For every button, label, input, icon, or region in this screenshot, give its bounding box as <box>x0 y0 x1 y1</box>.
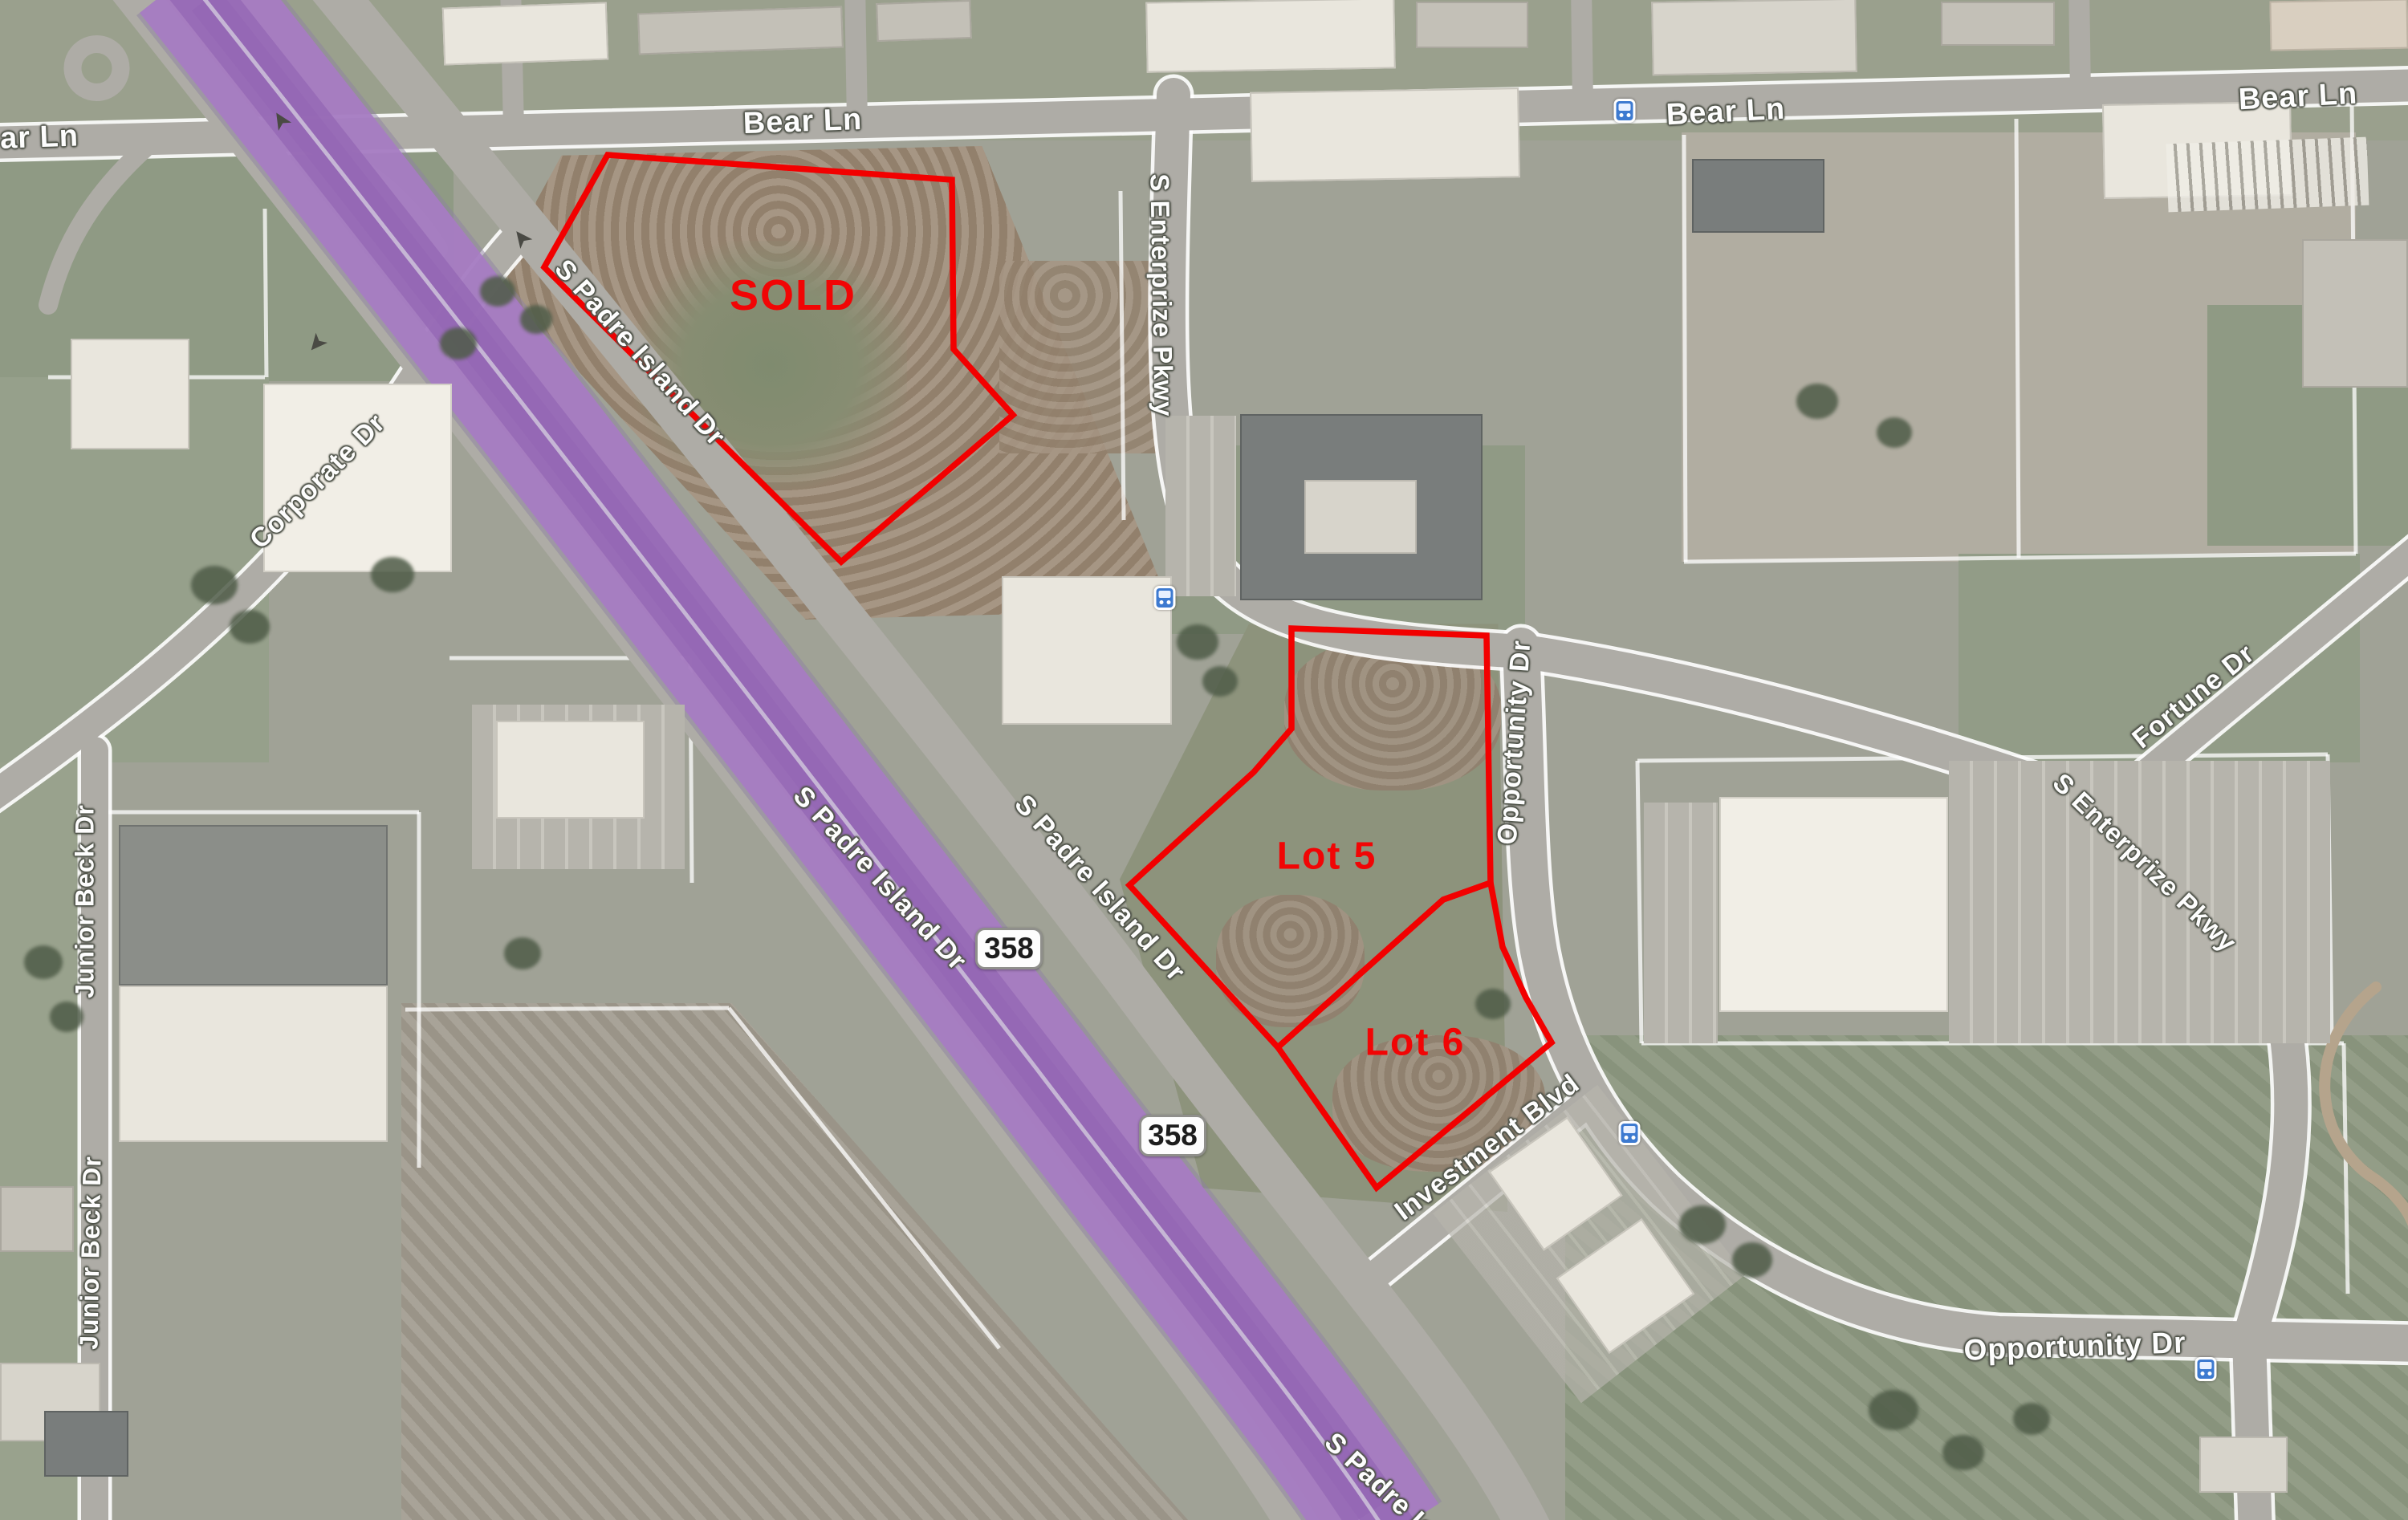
s-padre-island-dr-4-label: S Padre Isl <box>1318 1427 1448 1520</box>
bear-ln-2-label: Bear Ln <box>1666 92 1787 133</box>
lot-sold-label: SOLD <box>730 270 856 320</box>
fortune-dr-label: Fortune Dr <box>2126 638 2260 755</box>
bus-icon-opportunity-dr <box>2195 1357 2217 1381</box>
bus-icon-s-enterprize <box>1154 586 1176 610</box>
opportunity-dr-bottom-label: Opportunity Dr <box>1963 1326 2186 1368</box>
bus-icon-bear-ln <box>1614 99 1636 123</box>
junior-beck-dr-2-label: Junior Beck Dr <box>74 1156 107 1350</box>
shield-358-lower: 358 <box>1139 1115 1206 1156</box>
bear-ln-left-label: ear Ln <box>0 119 79 156</box>
one-way-arrow: ➤ <box>300 327 335 360</box>
one-way-arrow: ➤ <box>263 104 298 136</box>
opportunity-dr-vertical-label: Opportunity Dr <box>1492 639 1538 846</box>
corporate-dr-label: Corporate Dr <box>244 408 392 555</box>
lot-5-label: Lot 5 <box>1277 835 1377 879</box>
lot-6-label: Lot 6 <box>1365 1021 1466 1065</box>
s-enterprize-pkwy-top-label: S Enterprize Pkwy <box>1144 173 1178 417</box>
shield-358-upper: 358 <box>975 928 1043 969</box>
labels-layer: SOLDLot 5Lot 6ear LnBear LnBear LnBear L… <box>0 0 2408 1520</box>
s-padre-island-dr-2-label: S Padre Island Dr <box>787 781 973 977</box>
map-canvas[interactable]: SOLDLot 5Lot 6ear LnBear LnBear LnBear L… <box>0 0 2408 1520</box>
bear-ln-3-label: Bear Ln <box>2238 77 2359 118</box>
bear-ln-1-label: Bear Ln <box>742 103 863 141</box>
one-way-arrow: ➤ <box>504 221 539 254</box>
investment-blvd-label: Investment Blvd <box>1389 1068 1585 1227</box>
bus-icon-investment-blvd <box>1619 1121 1641 1145</box>
s-padre-island-dr-1-label: S Padre Island Dr <box>548 254 732 453</box>
junior-beck-dr-1-label: Junior Beck Dr <box>71 804 100 998</box>
s-enterprize-pkwy-right-label: S Enterprize Pkwy <box>2047 767 2243 958</box>
